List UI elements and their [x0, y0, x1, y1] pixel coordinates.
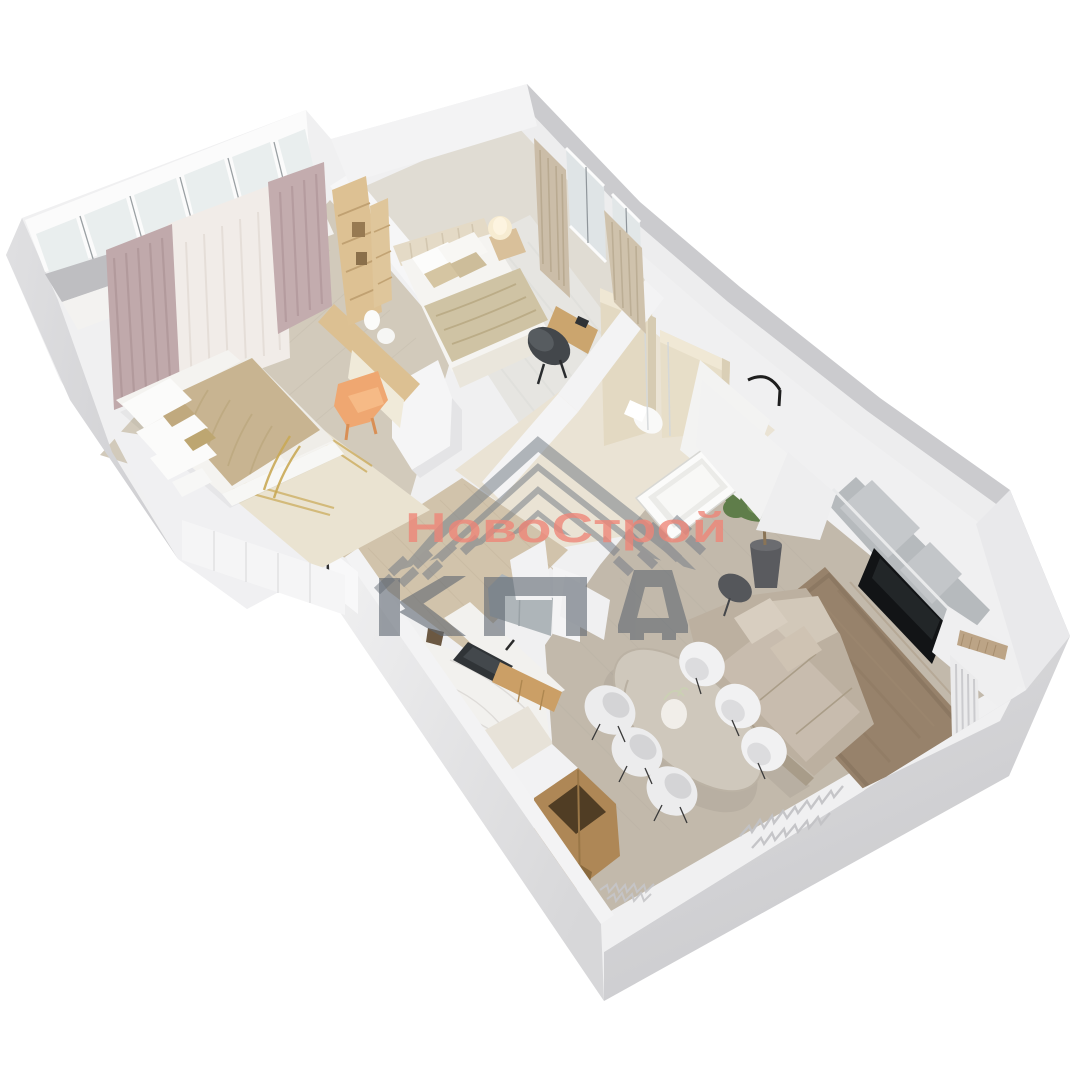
svg-text:НовоСтрой: НовоСтрой: [405, 504, 727, 551]
